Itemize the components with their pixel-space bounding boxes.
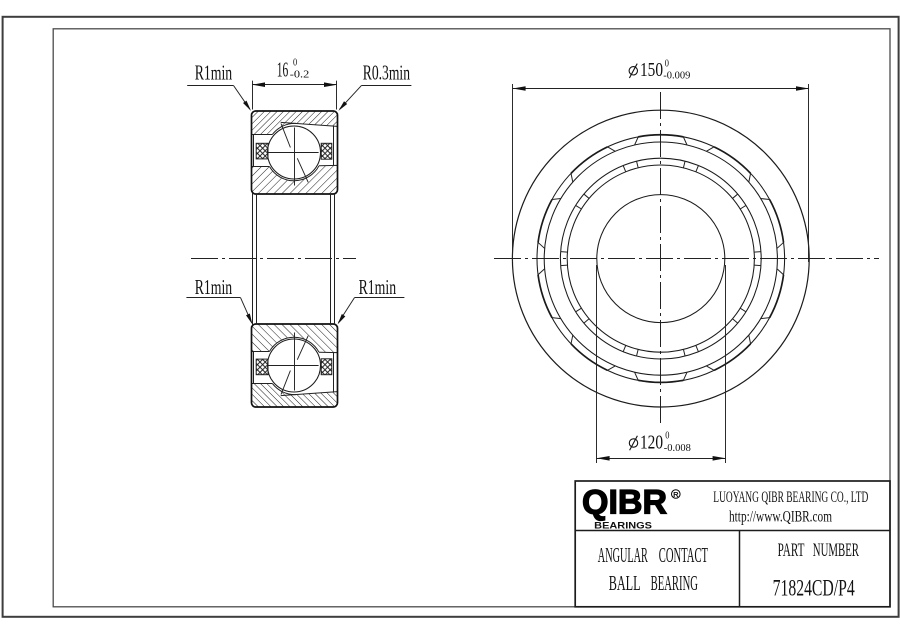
svg-text:0: 0 (293, 57, 297, 68)
svg-text:NUMBER: NUMBER (813, 540, 859, 561)
svg-text:http://www.QIBR.com: http://www.QIBR.com (729, 509, 832, 526)
svg-text:BEARING: BEARING (651, 571, 698, 595)
svg-text:BALL: BALL (609, 571, 641, 595)
svg-text:R1min: R1min (195, 60, 233, 84)
svg-text:-0.2: -0.2 (290, 70, 310, 81)
svg-text:-0.009: -0.009 (663, 70, 690, 81)
svg-text:R0.3min: R0.3min (363, 60, 411, 84)
svg-text:-0.008: -0.008 (664, 443, 691, 454)
svg-text:150: 150 (640, 59, 663, 81)
svg-text:120: 120 (640, 432, 663, 454)
svg-text:BEARINGS: BEARINGS (594, 520, 652, 531)
svg-text:16: 16 (277, 57, 289, 81)
svg-text:ANGULAR: ANGULAR (598, 543, 648, 567)
svg-text:LUOYANG QIBR BEARING CO., LTD: LUOYANG QIBR BEARING CO., LTD (713, 489, 868, 506)
svg-text:0: 0 (665, 430, 669, 441)
svg-text:R: R (673, 490, 679, 499)
svg-text:R1min: R1min (359, 275, 397, 299)
svg-text:QIBR: QIBR (582, 484, 667, 522)
svg-text:0: 0 (665, 58, 669, 69)
svg-text:CONTACT: CONTACT (659, 543, 708, 567)
svg-text:PART: PART (778, 540, 805, 561)
svg-text:71824CD/P4: 71824CD/P4 (773, 576, 856, 601)
svg-text:R1min: R1min (195, 275, 233, 299)
